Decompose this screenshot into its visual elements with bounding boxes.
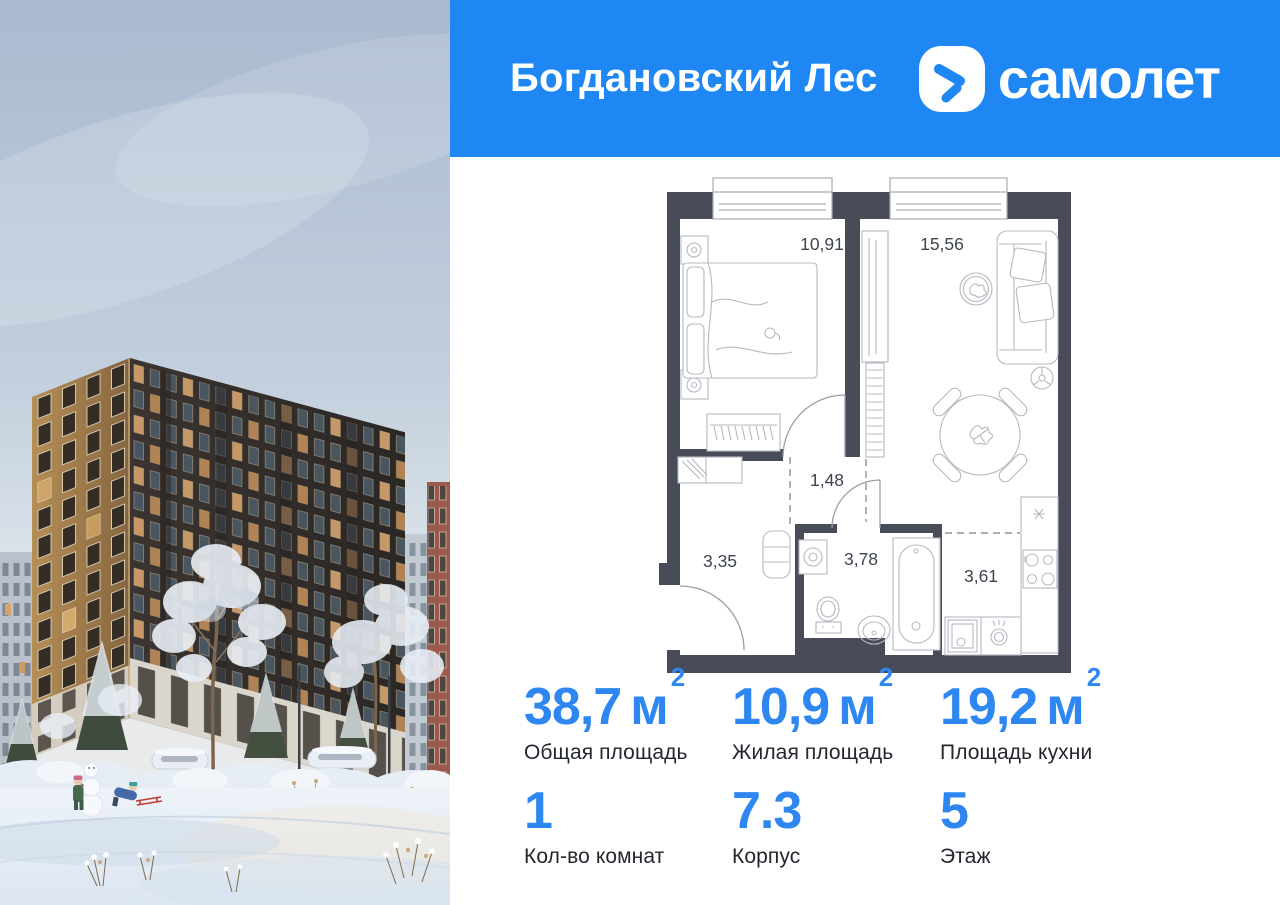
- stat-value: 19,2м2: [940, 680, 1145, 735]
- samolet-logo-icon: [919, 46, 985, 112]
- stat-label: Корпус: [732, 845, 937, 869]
- room-label-bathroom: 3,78: [844, 549, 878, 569]
- room-label-kitchen: 3,61: [964, 566, 998, 586]
- stat-value: 1: [524, 784, 729, 839]
- snow-ground: [0, 788, 450, 905]
- floor-plan: 10,91 15,56 1,48 3,35 3,78 3,61: [648, 172, 1084, 682]
- project-title: Богдановский Лес: [510, 56, 878, 101]
- room-label-hallway: 3,35: [703, 551, 737, 571]
- info-panel: Богдановский Лес самолет: [450, 0, 1280, 905]
- stat-building: 7.3 Корпус: [732, 784, 937, 869]
- stat-rooms-count: 1 Кол-во комнат: [524, 784, 729, 869]
- room-label-living: 15,56: [920, 234, 964, 254]
- stat-floor: 5 Этаж: [940, 784, 1145, 869]
- stat-value: 10,9м2: [732, 680, 937, 735]
- plan-furniture: [678, 231, 1058, 655]
- stat-label: Этаж: [940, 845, 1145, 869]
- project-photo: [0, 0, 450, 905]
- stat-living-area: 10,9м2 Жилая площадь: [732, 680, 937, 765]
- stat-label: Жилая площадь: [732, 741, 937, 765]
- stat-value: 38,7м2: [524, 680, 729, 735]
- room-label-corridor: 1,48: [810, 470, 844, 490]
- listing-card: Богдановский Лес самолет: [0, 0, 1280, 905]
- brand-name: самолет: [998, 51, 1220, 107]
- stat-label: Кол-во комнат: [524, 845, 729, 869]
- stat-value: 5: [940, 784, 1145, 839]
- header: Богдановский Лес самолет: [450, 0, 1280, 157]
- stat-label: Общая площадь: [524, 741, 729, 765]
- brand-logo: самолет: [919, 46, 1220, 112]
- stat-label: Площадь кухни: [940, 741, 1145, 765]
- room-label-bedroom: 10,91: [800, 234, 844, 254]
- stat-kitchen-area: 19,2м2 Площадь кухни: [940, 680, 1145, 765]
- stat-value: 7.3: [732, 784, 937, 839]
- stat-total-area: 38,7м2 Общая площадь: [524, 680, 729, 765]
